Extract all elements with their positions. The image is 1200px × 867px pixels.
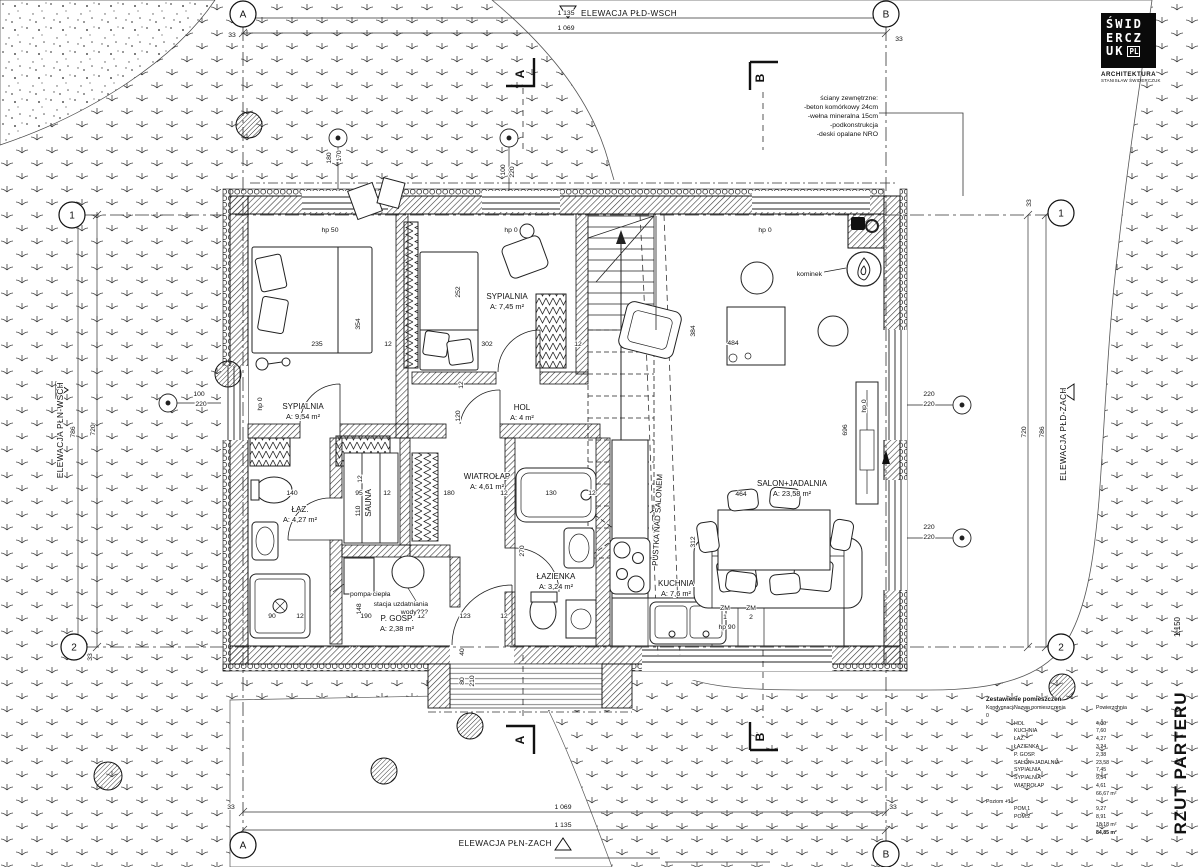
dimension-label: 130 [545, 490, 557, 497]
floor-plan-sheet: SYPIALNIAA: 9,54 m²SYPIALNIAA: 7,45 m²HO… [0, 0, 1200, 867]
dimension-label: 1 069 [554, 804, 571, 811]
dining-table [718, 510, 830, 570]
logo-row: UKPL [1106, 45, 1156, 59]
legend-row: WIATROŁAP4,61 [986, 783, 1142, 791]
legend-row: HOL4,00 [986, 721, 1142, 729]
dimension-label: 12 [384, 341, 392, 348]
dimension-label: 220 [923, 391, 935, 398]
window-salon-bottom [642, 644, 832, 671]
side-table [818, 316, 848, 346]
dimension-label: 123 [459, 613, 471, 620]
dimension-label: 120 [455, 410, 462, 422]
dimension-label: 220 [195, 401, 207, 408]
annotation-label: ZM [746, 605, 756, 612]
tree-icon [236, 112, 262, 138]
dimension-label: 220 [923, 401, 935, 408]
section-label: B [753, 73, 767, 82]
elevation-label: ELEWACJA PŁD-WSCH [581, 9, 677, 18]
dimension-label: 384 [690, 325, 697, 337]
studio-subname: STANISŁAW ŚWIDERCZUK [1101, 78, 1161, 83]
dimension-label: 1 135 [554, 822, 571, 829]
dimension-label: 170 [336, 150, 343, 162]
dimension-label: 140 [286, 490, 298, 497]
note-line: -podkonstrukcja [723, 121, 878, 130]
room-area: A: 2,38 m² [380, 624, 415, 633]
room-name: SALON+JADALNIA [757, 479, 828, 488]
dimension-label: 235 [311, 341, 323, 348]
room-schedule-table: Zestawienie pomieszczeń KondygnacjaNazwa… [986, 696, 1142, 838]
room-area: A: 9,54 m² [286, 412, 321, 421]
dimension-label: 786 [70, 426, 77, 438]
dimension-label: 252 [455, 286, 462, 298]
title-block: ŚWID ERCZ UKPL ARCHITEKTURA STANISŁAW ŚW… [1101, 13, 1161, 83]
legend-row: KondygnacjaNazwa pomieszczeniaPowierzchn… [986, 705, 1142, 713]
dimension-label: 220 [509, 166, 516, 178]
legend-row: 66,67 m² [986, 791, 1142, 799]
window-salon-top [752, 191, 870, 212]
dimension-label: 220 [923, 534, 935, 541]
logo-row: ERCZ [1106, 32, 1156, 46]
room-schedule-body: KondygnacjaNazwa pomieszczeniaPowierzchn… [986, 705, 1142, 838]
dimension-label: 12 [588, 490, 596, 497]
room-name: HOL [514, 403, 531, 412]
room-area: A: 7,6 m² [661, 589, 692, 598]
annotation-label: 1 [723, 614, 727, 621]
tree-icon [457, 713, 483, 739]
side-table [741, 262, 773, 294]
dimension-label: 110 [355, 505, 362, 516]
elevation-label: ELEWACJA PŁN-WSCH [56, 382, 65, 478]
room-name: SAUNA [364, 489, 373, 517]
legend-row: Poziom +1 [986, 799, 1142, 807]
dimension-label: 12 [383, 490, 391, 497]
tree-icon [215, 361, 241, 387]
room-name: ŁAZ. [292, 505, 309, 514]
wardrobe [250, 438, 290, 466]
tree-icon [371, 758, 397, 784]
elevation-label: ELEWACJA PŁD-ZACH [1059, 387, 1068, 480]
dimension-label: 33 [227, 804, 235, 811]
dimension-label: 302 [481, 341, 493, 348]
dimension-label: hp 0 [504, 227, 517, 234]
dimension-label: 312 [690, 536, 697, 548]
dimension-label: 1 135 [557, 10, 574, 17]
grid-bubble-label: A [240, 9, 247, 20]
grid-bubble-label: 2 [71, 642, 77, 653]
room-name: WIATROŁAP [464, 472, 511, 481]
dimension-label: 220 [923, 524, 935, 531]
grid-bubble-label: 2 [1058, 642, 1064, 653]
dimension-label: 210 [469, 675, 476, 687]
drawing-title: RZUT PARTERU [1171, 688, 1191, 838]
tree-icon [94, 762, 122, 790]
logo-row: ŚWID [1106, 18, 1156, 32]
dimension-label: hp 0 [861, 399, 868, 412]
dimension-label: 33 [87, 653, 94, 661]
legend-row: 0 [986, 713, 1142, 721]
note-line: -beton komórkowy 24cm [723, 103, 878, 112]
annotation-label: hp 90 [718, 624, 735, 631]
dimension-label: hp 50 [321, 227, 338, 234]
wardrobe [536, 294, 566, 368]
dimension-label: 12 [574, 341, 582, 348]
dimension-label: 40 [459, 648, 466, 656]
logo-suffix: PL [1127, 46, 1140, 57]
room-area: A: 4 m² [510, 413, 534, 422]
heater-closet [412, 453, 438, 541]
dimension-label: 720 [90, 424, 97, 436]
legend-row: SYPIALNIA7,45 [986, 767, 1142, 775]
dimension-label: 12 [500, 490, 508, 497]
studio-name: ARCHITEKTURA [1101, 71, 1161, 78]
dimension-label: 464 [735, 491, 747, 498]
drawing-scale: 1:150 [1173, 607, 1189, 647]
dimension-label: hp 0 [257, 397, 264, 410]
grid-bubble-label: 1 [1058, 208, 1064, 219]
dimension-label: 270 [519, 545, 526, 557]
dimension-label: 190 [360, 613, 372, 620]
dimension-label: 12 [296, 613, 304, 620]
dimension-label: 100 [500, 164, 507, 176]
studio-logo: ŚWID ERCZ UKPL [1101, 13, 1156, 68]
water-treatment [392, 556, 424, 588]
room-schedule-title: Zestawienie pomieszczeń [986, 696, 1142, 703]
grid-bubble-label: A [240, 840, 247, 851]
legend-row: KUCHNIA7,60 [986, 728, 1142, 736]
legend-row: ŁAZ.4,27 [986, 736, 1142, 744]
fireplace-icon [847, 252, 881, 286]
window-bedroom2-top [482, 191, 560, 212]
grid-bubble-label: B [883, 849, 890, 860]
dimension-label: 80 [459, 677, 466, 685]
dimension-label: 12 [458, 381, 465, 389]
section-label: B [753, 732, 767, 741]
room-area: A: 4,27 m² [283, 515, 318, 524]
dimension-label: 180 [443, 490, 455, 497]
dimension-label: 1 069 [557, 25, 574, 32]
wall-assembly-note: ściany zewnętrzne: -beton komórkowy 24cm… [723, 94, 878, 139]
annotation-label: wody??? [400, 609, 428, 616]
legend-row: POM.28,91 [986, 814, 1142, 822]
dimension-label: 100 [193, 391, 205, 398]
section-label: A [513, 69, 527, 78]
dimension-label: 33 [1026, 199, 1033, 207]
legend-row: ŁAZIENKA3,24 [986, 744, 1142, 752]
dimension-label: 696 [842, 424, 849, 436]
dimension-label: 354 [355, 318, 362, 330]
legend-row: 18,18 m² [986, 822, 1142, 830]
heat-pump [344, 558, 374, 594]
room-name: ŁAZIENKA [537, 572, 576, 581]
dimension-label: 12 [500, 613, 508, 620]
room-area: A: 23,58 m² [773, 489, 812, 498]
dimension-label: 33 [889, 804, 897, 811]
dimension-label: 12 [357, 475, 364, 483]
note-line: -wełna mineralna 15cm [723, 112, 878, 121]
dimension-label: 33 [895, 36, 903, 43]
annotation-label: pompa ciepła [350, 591, 391, 598]
annotation-label: kominek [797, 271, 823, 278]
dimension-label: hp 0 [758, 227, 771, 234]
annotation-label: stacja uzdatniania [374, 601, 429, 608]
legend-row: POM.19,27 [986, 806, 1142, 814]
dimension-label: 786 [1039, 426, 1046, 438]
dimension-label: 180 [326, 152, 333, 164]
annotation-label: ZM [720, 605, 730, 612]
sauna-fitout [344, 453, 438, 543]
section-label: A [513, 735, 527, 744]
room-name: KUCHNIA [658, 579, 695, 588]
room-name: SYPIALNIA [282, 402, 324, 411]
dimension-label: 95 [355, 490, 363, 497]
room-name: SYPIALNIA [486, 292, 528, 301]
dimension-label: 484 [727, 340, 739, 347]
entrance-porch [428, 664, 632, 712]
legend-row: P. GOSP.2,38 [986, 752, 1142, 760]
note-line: ściany zewnętrzne: [723, 94, 878, 103]
room-area: A: 3,24 m² [539, 582, 574, 591]
elevation-label: ELEWACJA PŁN-ZACH [459, 839, 552, 848]
dimension-label: 720 [1021, 426, 1028, 438]
grid-bubble-label: B [883, 9, 890, 20]
note-line: -deski opalane NRO [723, 130, 878, 139]
room-area: A: 7,45 m² [490, 302, 525, 311]
legend-row: 84,85 m² [986, 830, 1142, 838]
dimension-label: 33 [228, 32, 236, 39]
legend-row: SYPIALNIA9,54 [986, 775, 1142, 783]
dimension-label: 90 [268, 613, 276, 620]
wardrobe [404, 222, 418, 368]
annotation-label: 2 [749, 614, 753, 621]
legend-row: SALON+JADALNIA23,58 [986, 760, 1142, 768]
grid-bubble-label: 1 [69, 210, 75, 221]
